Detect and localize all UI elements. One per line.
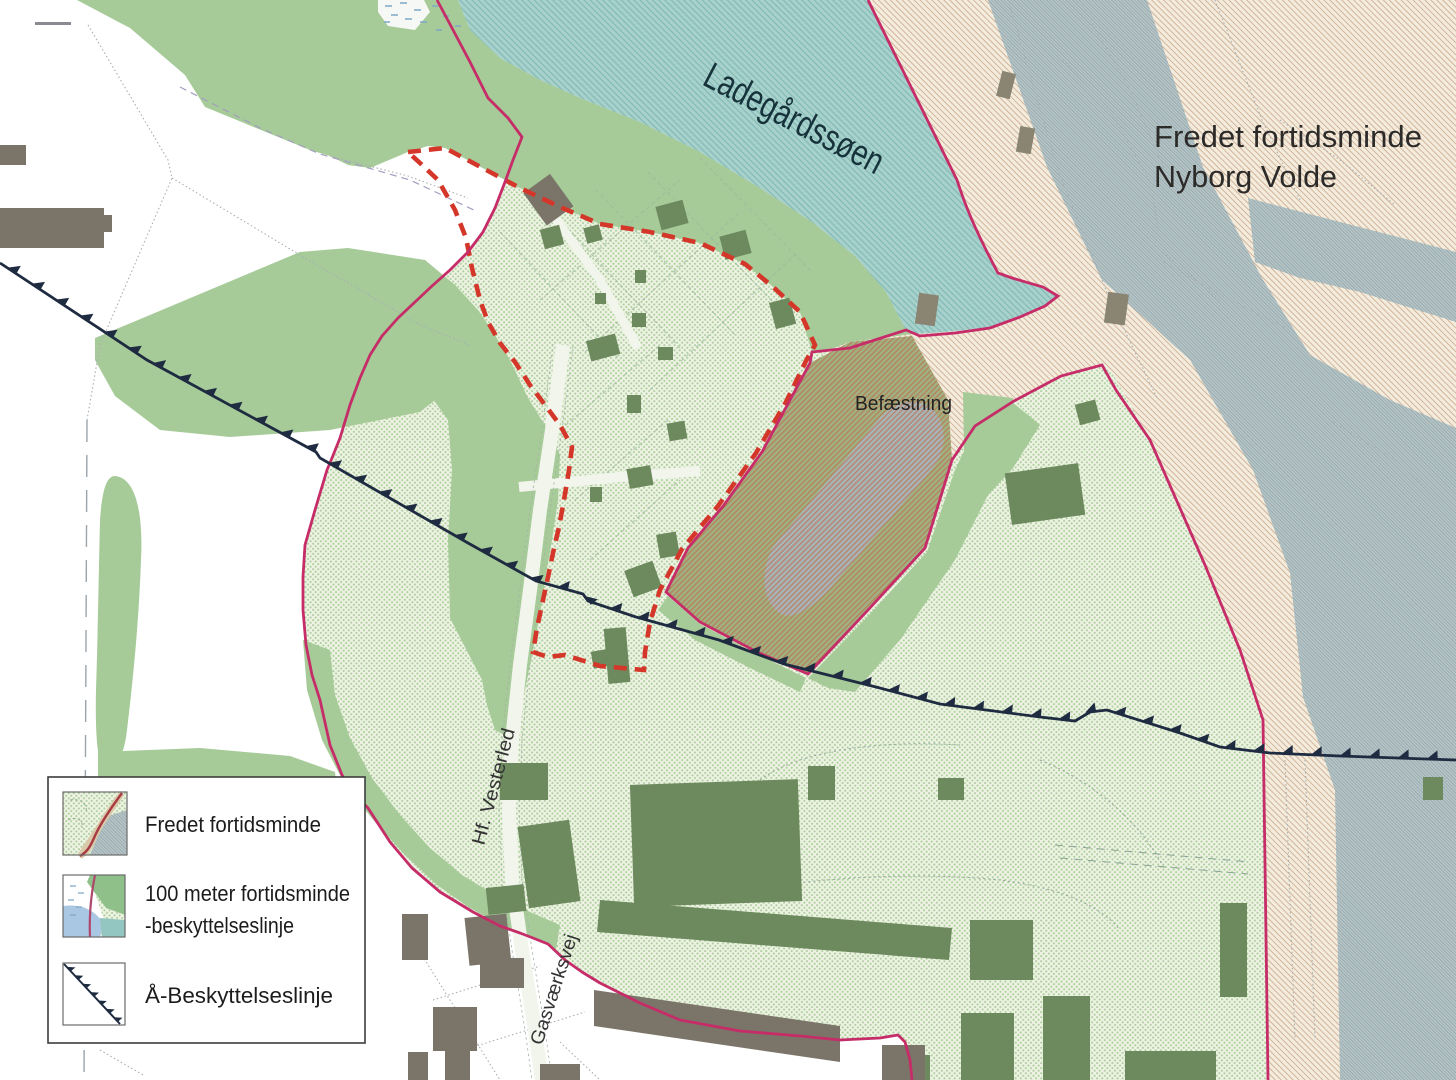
svg-text:Fredet fortidsminde: Fredet fortidsminde	[145, 812, 321, 837]
svg-text:Nyborg Volde: Nyborg Volde	[1154, 159, 1337, 194]
svg-text:Fredet fortidsminde: Fredet fortidsminde	[1154, 119, 1422, 154]
svg-text:100 meter fortidsminde: 100 meter fortidsminde	[145, 881, 350, 906]
svg-text:Å-Beskyttelseslinje: Å-Beskyttelseslinje	[145, 983, 333, 1008]
svg-text:-beskyttelseslinje: -beskyttelseslinje	[145, 913, 294, 938]
svg-text:Befæstning: Befæstning	[855, 393, 952, 415]
